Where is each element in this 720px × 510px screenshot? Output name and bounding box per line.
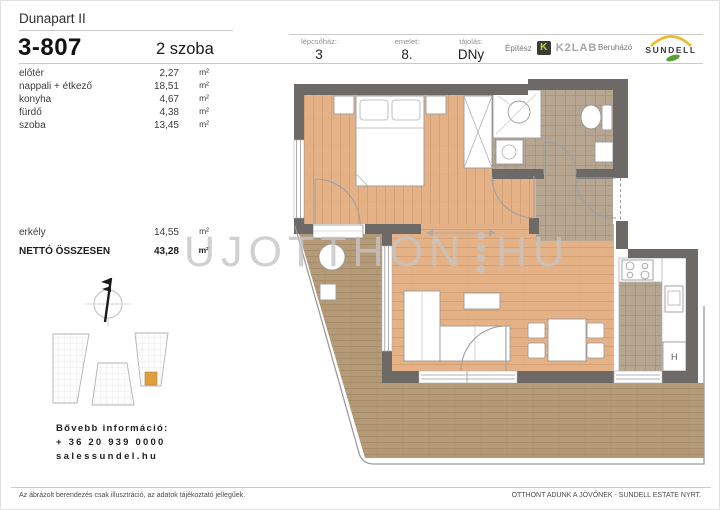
washing-machine xyxy=(496,140,523,164)
balcony-stool xyxy=(320,284,336,300)
architect-name: K2LAB xyxy=(556,42,598,54)
dining-chair xyxy=(528,323,545,338)
footer-disclaimer: Az ábrázolt berendezés csak illusztráció… xyxy=(19,492,245,499)
developer-logo-group: Beruházó SUNDELL xyxy=(598,31,705,63)
header-col-floor: emelet: 8. xyxy=(376,37,438,62)
north-arrow-icon xyxy=(85,278,131,326)
staircase-label: lépcsőház: xyxy=(288,37,350,46)
unit-location-highlight xyxy=(145,372,157,385)
staircase-value: 3 xyxy=(288,47,350,62)
nightstand xyxy=(426,96,446,114)
floor-label: emelet: xyxy=(376,37,438,46)
architect-label: Építész xyxy=(505,44,532,53)
dining-table xyxy=(548,319,586,361)
pillow xyxy=(360,100,388,120)
pillow xyxy=(392,100,420,120)
site-building-center xyxy=(92,363,134,405)
balcony-threshold xyxy=(313,225,363,238)
fridge-label: H xyxy=(671,352,678,362)
washbasin xyxy=(508,101,530,123)
dining-chair xyxy=(528,343,545,358)
entry-floor xyxy=(536,177,613,241)
total-row: NETTÓ ÖSSZESEN43,28m² xyxy=(19,246,209,258)
floorplan-drawing: H xyxy=(286,76,716,481)
site-building-left xyxy=(53,334,89,403)
architect-logo-group: Építész K K2LAB xyxy=(505,39,597,57)
nightstand xyxy=(334,96,354,114)
developer-label: Beruházó xyxy=(598,43,632,52)
balcony-table xyxy=(319,244,345,270)
coffee-table xyxy=(464,293,500,309)
dining-chair xyxy=(587,323,604,338)
footer-company: OTTHONT ADUNK A JÖVŐNEK - SUNDELL ESTATE… xyxy=(512,492,701,499)
orientation-value: DNy xyxy=(440,47,502,62)
orientation-label: tájolás: xyxy=(440,37,502,46)
divider-line xyxy=(19,30,233,31)
toilet-tank xyxy=(602,105,612,130)
contact-title: Bővebb információ: xyxy=(56,423,169,434)
floor-value: 8. xyxy=(376,47,438,62)
bathroom-cabinet xyxy=(595,142,613,162)
toilet-bowl xyxy=(581,105,601,129)
contact-phone: + 36 20 939 0000 xyxy=(56,437,169,448)
siteplan-and-compass xyxy=(41,266,181,411)
room-row: fürdő4,38m² xyxy=(19,107,209,119)
k2lab-logo-icon: K xyxy=(537,41,551,55)
unit-number: 3-807 xyxy=(18,34,82,62)
contact-website: salessundel.hu xyxy=(56,451,169,462)
contact-block: Bővebb információ: + 36 20 939 0000 sale… xyxy=(56,423,169,462)
room-row: előtér2,27m² xyxy=(19,68,209,80)
divider-line xyxy=(19,63,703,64)
room-row: nappali + étkező18,51m² xyxy=(19,81,209,93)
room-row: konyha4,67m² xyxy=(19,94,209,106)
room-count: 2 szoba xyxy=(156,40,214,59)
header-col-orientation: tájolás: DNy xyxy=(440,37,502,62)
developer-name: SUNDELL xyxy=(646,45,697,55)
floorplan-sheet: Dunapart II 3-807 2 szoba lépcsőház: 3 e… xyxy=(0,0,720,510)
hall-floor xyxy=(492,177,536,224)
room-row: szoba13,45m² xyxy=(19,120,209,132)
project-title: Dunapart II xyxy=(19,11,86,26)
balcony-row: erkély14,55m² xyxy=(19,227,209,239)
sundell-logo: SUNDELL xyxy=(637,31,705,63)
dining-chair xyxy=(587,343,604,358)
footer-divider xyxy=(11,487,711,488)
header-col-staircase: lépcsőház: 3 xyxy=(288,37,350,62)
